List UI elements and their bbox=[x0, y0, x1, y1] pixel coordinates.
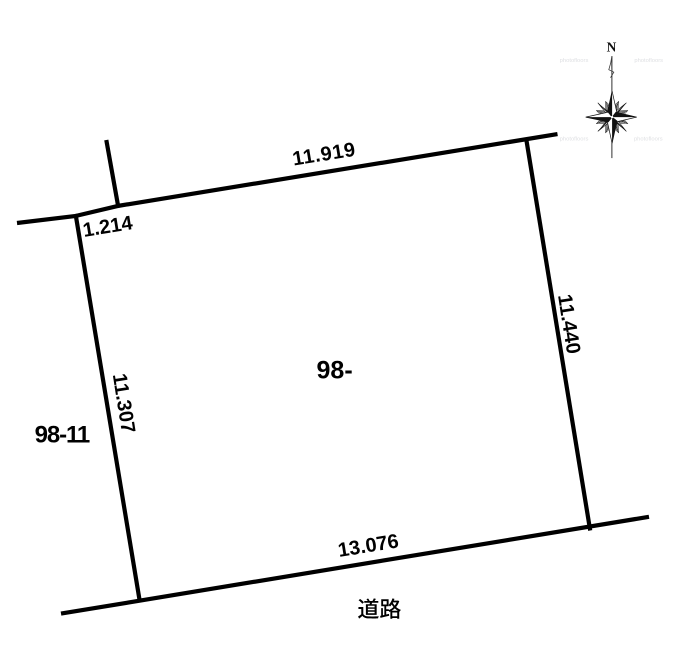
svg-text:photofloors: photofloors bbox=[560, 137, 589, 143]
svg-text:photofloors: photofloors bbox=[560, 58, 589, 64]
svg-text:N: N bbox=[607, 40, 617, 55]
svg-text:photofloors: photofloors bbox=[634, 137, 663, 143]
svg-text:98-11: 98-11 bbox=[35, 422, 90, 449]
svg-text:98-: 98- bbox=[317, 356, 353, 384]
svg-text:photofloors: photofloors bbox=[634, 58, 663, 64]
